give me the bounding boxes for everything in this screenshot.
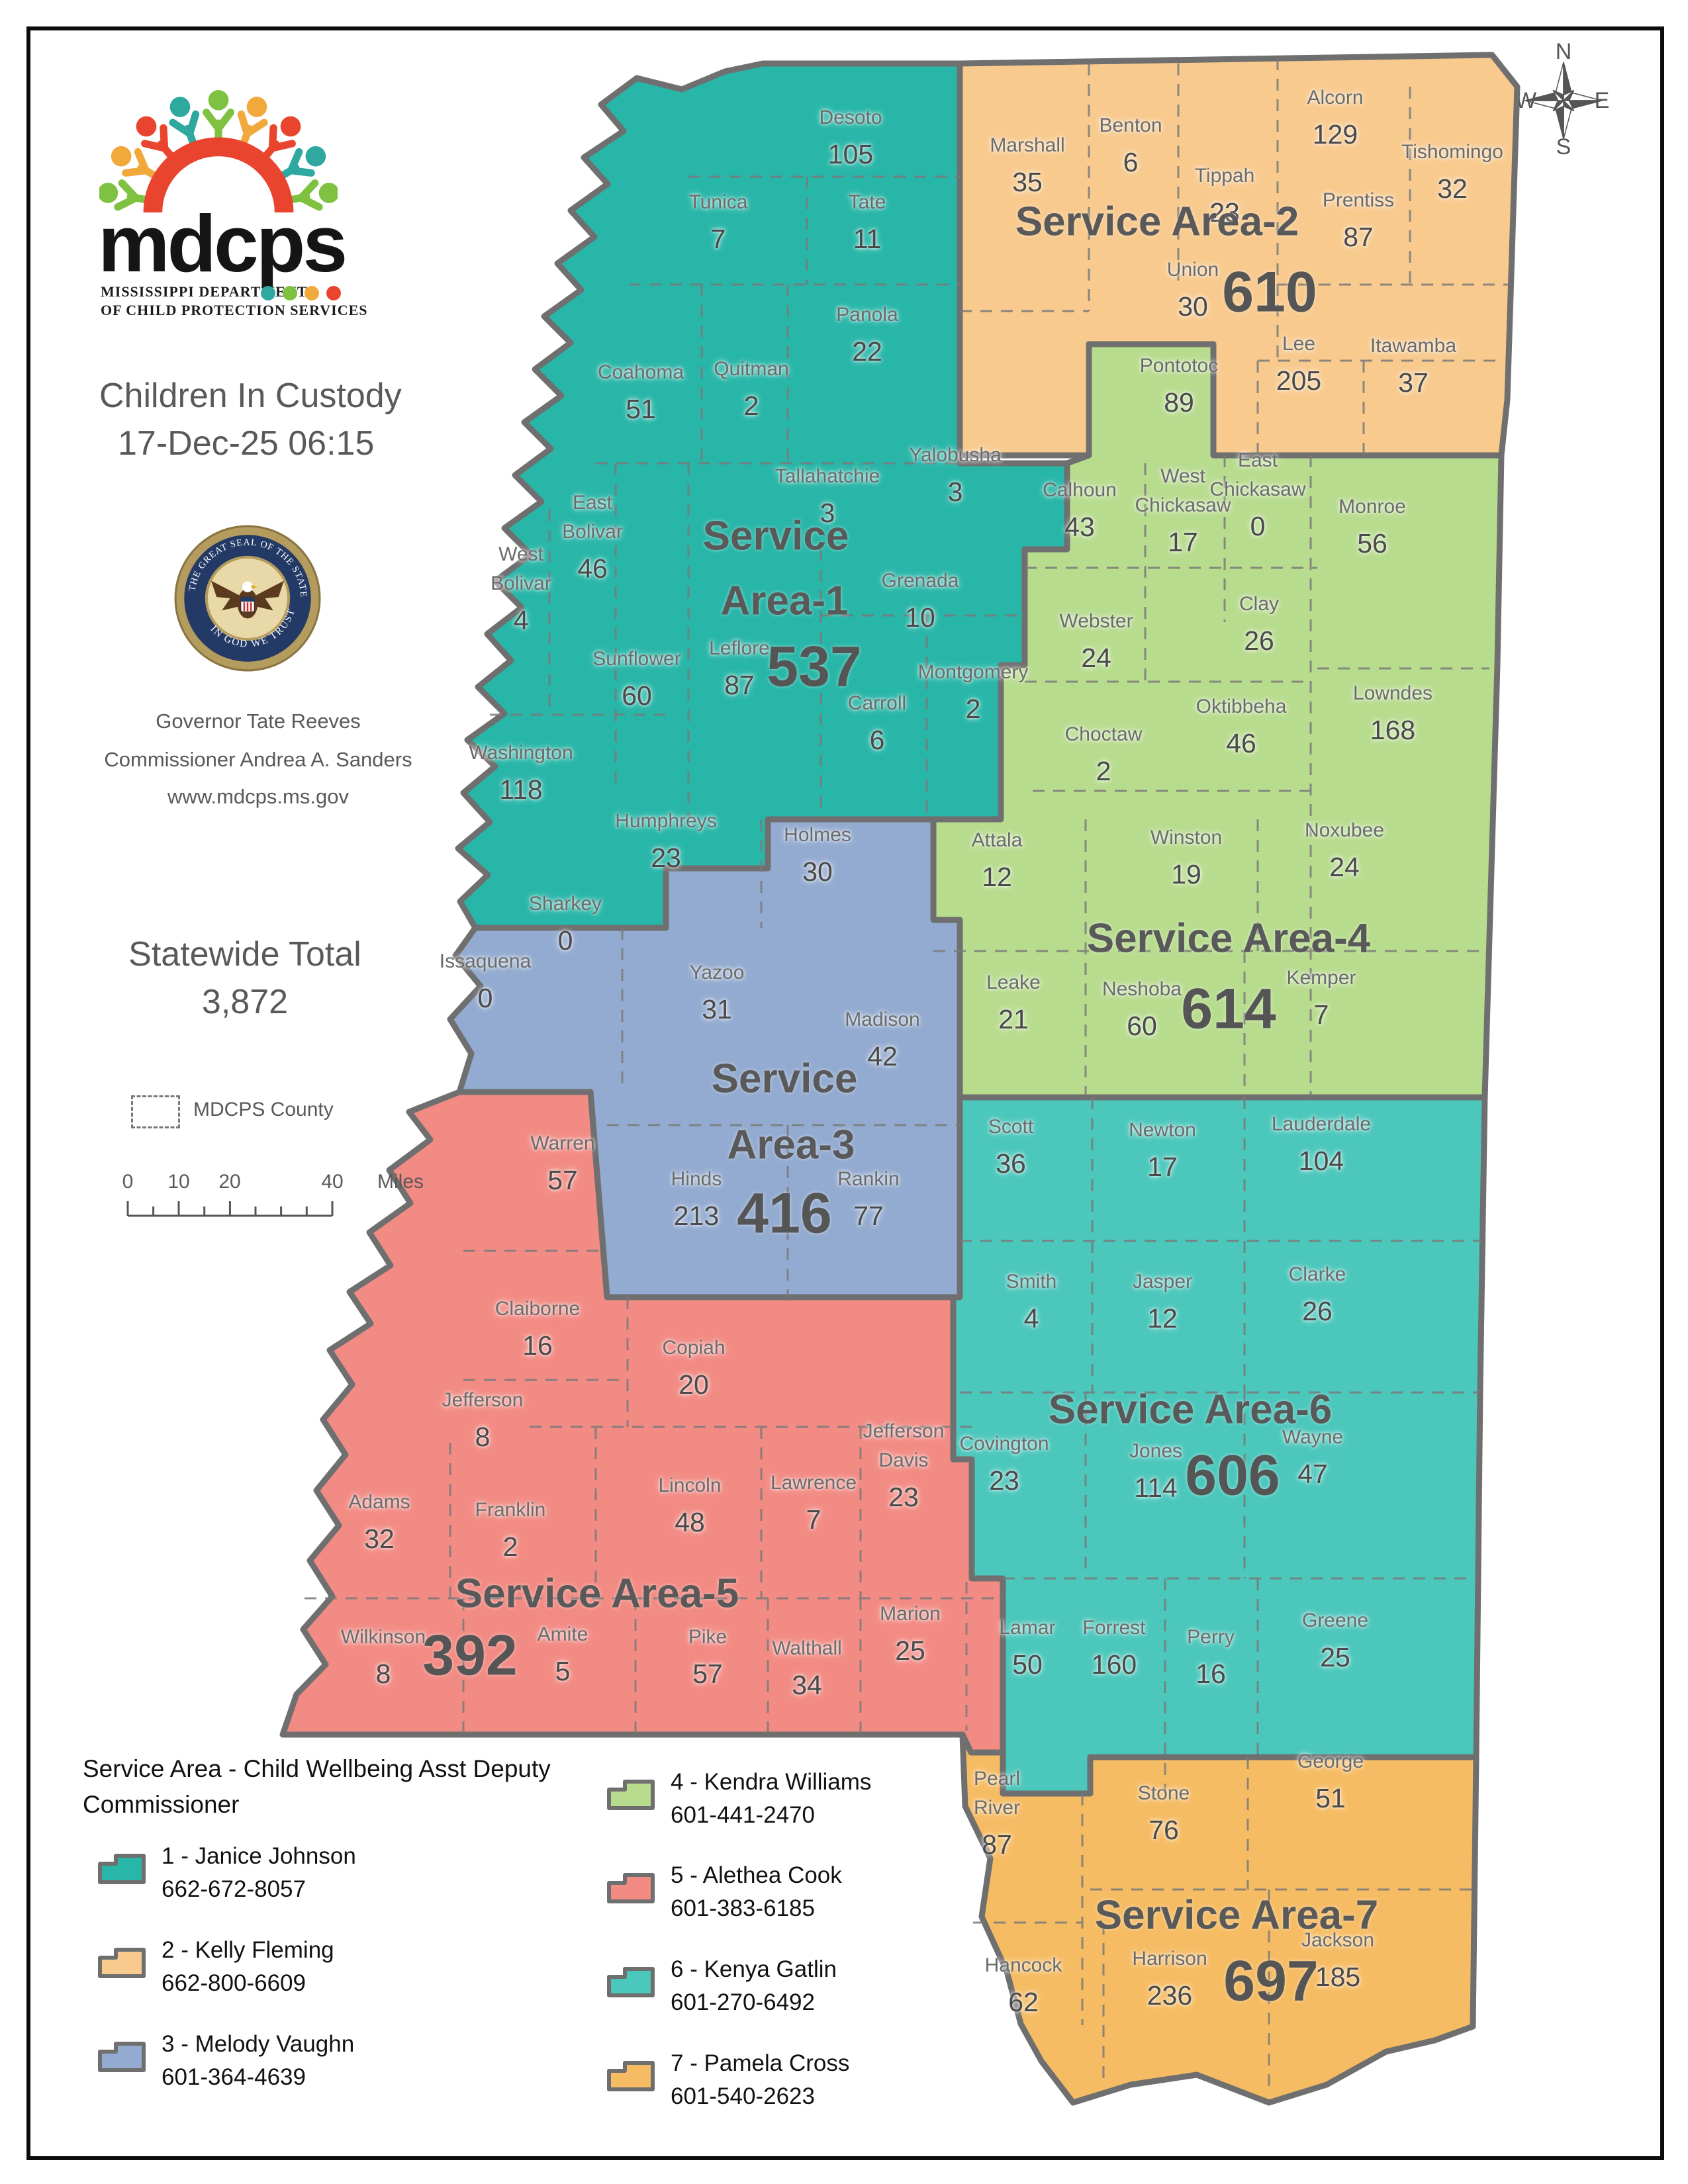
county-value: 46 (1196, 727, 1287, 760)
county-name: Webster (1059, 607, 1133, 636)
legend-item-4: 4 - Kendra Williams601-441-2470 (606, 1766, 871, 1832)
area-total-4: 614 (1181, 977, 1276, 1042)
county-lincoln: Lincoln48 (658, 1471, 721, 1539)
county-union: Union30 (1167, 255, 1219, 323)
county-value: 6 (848, 723, 906, 756)
county-clay: Clay26 (1239, 590, 1279, 657)
county-name: Alcorn (1307, 83, 1363, 113)
legend-swatch (97, 1944, 148, 1981)
county-name: Franklin (475, 1496, 546, 1525)
county-newton: Newton17 (1129, 1116, 1196, 1183)
county-name: Issaquena (440, 947, 531, 976)
area-title-2: Service Area-2 (1015, 199, 1299, 246)
legend-item-5: 5 - Alethea Cook601-383-6185 (606, 1859, 842, 1925)
county-value: 46 (562, 552, 623, 585)
county-lamar: Lamar50 (999, 1614, 1055, 1681)
county-name: Lamar (999, 1614, 1055, 1643)
area-total-1: 537 (767, 635, 862, 700)
scale-bar: 0 10 20 40 Miles (119, 1168, 450, 1234)
county-name: Hancock (985, 1951, 1062, 1980)
county-calhoun: Calhoun43 (1043, 476, 1117, 543)
county-name: Stone (1138, 1779, 1190, 1808)
county-value: 77 (837, 1199, 899, 1232)
legend-item-phone: 601-364-4639 (162, 2061, 354, 2094)
county-name: Holmes (784, 821, 851, 850)
county-value: 48 (658, 1506, 721, 1539)
county-name: Calhoun (1043, 476, 1117, 505)
legend-item-2: 2 - Kelly Fleming662-800-6609 (97, 1934, 334, 2000)
county-neshoba: Neshoba60 (1102, 975, 1182, 1042)
county-name: Wilkinson (341, 1623, 426, 1652)
area-title-7: Service Area-7 (1095, 1892, 1379, 1939)
county-name: Clarke (1289, 1260, 1346, 1289)
county-value: 7 (771, 1503, 857, 1536)
county-grenada: Grenada10 (882, 567, 959, 634)
county-lowndes: Lowndes168 (1353, 679, 1432, 747)
county-montgomery: Montgomery2 (918, 658, 1029, 725)
county-value: 76 (1138, 1813, 1190, 1846)
county-amite: Amite5 (538, 1620, 588, 1688)
county-east-chickasaw: EastChickasaw0 (1209, 446, 1305, 543)
county-name: Walthall (772, 1634, 842, 1663)
county-name: Perry (1187, 1623, 1235, 1652)
county-value: 8 (442, 1420, 524, 1453)
compass-rose: N S W E (1519, 43, 1609, 159)
county-name: Prentiss (1323, 186, 1394, 215)
county-value: 89 (1140, 386, 1218, 419)
legend-item-name: 7 - Pamela Cross (671, 2047, 849, 2080)
compass-north: N (1556, 43, 1572, 64)
county-scott: Scott36 (988, 1113, 1033, 1180)
county-name: Sharkey (529, 889, 602, 919)
county-value: 32 (348, 1522, 410, 1555)
county-name: Pontotoc (1140, 351, 1218, 381)
legend-item-3: 3 - Melody Vaughn601-364-4639 (97, 2028, 354, 2094)
legend-title-line1: Service Area - Child Wellbeing Asst Depu… (83, 1755, 551, 1783)
county-value: 62 (985, 1985, 1062, 2019)
county-hinds: Hinds213 (671, 1165, 722, 1232)
county-smith: Smith4 (1006, 1267, 1057, 1335)
area-total-6: 606 (1185, 1443, 1280, 1509)
county-name: Adams (348, 1488, 410, 1517)
county-lee: Lee205 (1276, 330, 1321, 397)
legend-swatch (606, 1870, 657, 1907)
county-yazoo: Yazoo31 (690, 958, 745, 1026)
scale-tick-0: 0 (122, 1171, 134, 1193)
county-value: 43 (1043, 510, 1117, 543)
scale-tick-20: 20 (218, 1171, 240, 1193)
county-name: Union (1167, 255, 1219, 285)
county-value: 37 (1370, 366, 1456, 399)
area-title-3: Service (712, 1056, 858, 1103)
county-name: Yalobusha (909, 441, 1002, 470)
county-value: 168 (1353, 713, 1432, 747)
county-winston: Winston19 (1150, 823, 1222, 891)
county-name: Copiah (662, 1334, 725, 1363)
county-name: Montgomery (918, 658, 1029, 687)
county-value: 2 (475, 1530, 546, 1563)
county-adams: Adams32 (348, 1488, 410, 1555)
county-perry: Perry16 (1187, 1623, 1235, 1690)
area-total-3: 416 (737, 1181, 832, 1247)
legend-item-phone: 601-270-6492 (671, 1986, 837, 2019)
county-value: 23 (615, 841, 716, 874)
county-value: 56 (1338, 527, 1406, 560)
county-coahoma: Coahoma51 (598, 358, 684, 426)
county-walthall: Walthall34 (772, 1634, 842, 1702)
county-issaquena: Issaquena0 (440, 947, 531, 1015)
county-name: Itawamba (1370, 332, 1456, 361)
legend-item-name: 3 - Melody Vaughn (162, 2028, 354, 2061)
website-line: www.mdcps.ms.gov (60, 785, 457, 809)
county-name: Covington (959, 1430, 1049, 1459)
county-name: Humphreys (615, 807, 716, 836)
county-covington: Covington23 (959, 1430, 1049, 1497)
statewide-total-value: 3,872 (46, 982, 444, 1022)
mdcps-wordmark: mdcps (98, 210, 345, 277)
legend-item-name: 1 - Janice Johnson (162, 1840, 356, 1873)
county-itawamba: Itawamba37 (1370, 332, 1456, 399)
county-value: 25 (1302, 1641, 1368, 1674)
county-value: 51 (598, 392, 684, 426)
county-webster: Webster24 (1059, 607, 1133, 674)
legend-swatch (606, 2058, 657, 2095)
commissioner-line: Commissioner Andrea A. Sanders (60, 748, 457, 772)
county-name: East (1209, 446, 1305, 475)
county-value: 36 (988, 1147, 1033, 1180)
county-name: Lincoln (658, 1471, 721, 1500)
county-value: 26 (1289, 1295, 1346, 1328)
county-value: 0 (1209, 510, 1305, 543)
county-tishomingo: Tishomingo32 (1401, 138, 1503, 205)
county-value: 12 (972, 860, 1023, 893)
governor-line: Governor Tate Reeves (60, 709, 457, 733)
county-value: 22 (836, 335, 898, 368)
county-value: 87 (1323, 220, 1394, 253)
county-pike: Pike57 (688, 1623, 727, 1690)
county-leflore: Leflore87 (709, 634, 770, 702)
county-name: Oktibbeha (1196, 692, 1287, 721)
legend-item-name: 5 - Alethea Cook (671, 1859, 842, 1892)
county-value: 205 (1276, 364, 1321, 397)
scale-tick-40: 40 (321, 1171, 343, 1193)
county-value: 114 (1129, 1471, 1182, 1504)
county-value: 17 (1129, 1150, 1196, 1183)
county-leake: Leake21 (986, 968, 1041, 1036)
area-title-3: Area-3 (727, 1122, 855, 1169)
county-name: Smith (1006, 1267, 1057, 1297)
county-lawrence: Lawrence7 (771, 1469, 857, 1536)
county-choctaw: Choctaw2 (1065, 720, 1143, 788)
county-value: 31 (690, 993, 745, 1026)
county-name: Quitman (714, 355, 788, 384)
county-value: 118 (469, 773, 573, 806)
area-title-6: Service Area-6 (1049, 1387, 1333, 1433)
county-value: 25 (880, 1634, 941, 1667)
area-title-1: Area-1 (721, 578, 849, 625)
legend-item-phone: 662-672-8057 (162, 1873, 356, 1906)
county-stone: Stone76 (1138, 1779, 1190, 1846)
county-name: Pearl (974, 1764, 1020, 1794)
legend-swatch (606, 1964, 657, 2001)
county-name: Winston (1150, 823, 1222, 852)
county-desoto: Desoto105 (819, 103, 882, 171)
county-name: Tippah (1195, 161, 1255, 191)
county-name: Warren (530, 1129, 594, 1158)
county-name: Grenada (882, 567, 959, 596)
county-name: Benton (1099, 111, 1162, 140)
county-name: Pike (688, 1623, 727, 1652)
county-name: Tishomingo (1401, 138, 1503, 167)
compass-west: W (1519, 88, 1536, 113)
scale-unit: Miles (377, 1171, 424, 1193)
county-value: 2 (918, 692, 1029, 725)
county-value: 8 (341, 1657, 426, 1690)
county-value: 57 (530, 1163, 594, 1197)
county-name: Kemper (1286, 964, 1356, 993)
compass-east: E (1595, 88, 1609, 113)
statewide-total-label: Statewide Total (46, 934, 444, 974)
county-name: Forrest (1082, 1614, 1145, 1643)
logo-dots (259, 285, 346, 302)
county-quitman: Quitman2 (714, 355, 788, 422)
county-name: Jefferson (863, 1417, 945, 1446)
county-kemper: Kemper7 (1286, 964, 1356, 1031)
county-name: Tallahatchie (775, 462, 880, 491)
area-total-5: 392 (422, 1623, 518, 1689)
county-value: 213 (671, 1199, 722, 1232)
county-value: 30 (1167, 290, 1219, 323)
area-total-7: 697 (1223, 1949, 1319, 2015)
county-value: 16 (1187, 1657, 1235, 1690)
county-hancock: Hancock62 (985, 1951, 1062, 2019)
county-value: 105 (819, 138, 882, 171)
county-value: 51 (1297, 1782, 1364, 1815)
county-name: Monroe (1338, 492, 1406, 522)
county-name: Chickasaw (1209, 475, 1305, 504)
county-noxubee: Noxubee24 (1305, 816, 1384, 884)
county-yalobusha: Yalobusha3 (909, 441, 1002, 508)
county-value: 0 (529, 924, 602, 957)
county-value: 87 (709, 668, 770, 702)
county-greene: Greene25 (1302, 1606, 1368, 1674)
county-name: Leake (986, 968, 1041, 997)
county-value: 19 (1150, 858, 1222, 891)
county-jones: Jones114 (1129, 1437, 1182, 1504)
county-name: Lauderdale (1272, 1110, 1371, 1139)
mdcps-county-key-label: MDCPS County (193, 1099, 334, 1121)
county-name: Lee (1276, 330, 1321, 359)
county-washington: Washington118 (469, 739, 573, 806)
county-value: 236 (1132, 1979, 1207, 2012)
county-value: 24 (1305, 850, 1384, 884)
county-value: 60 (592, 679, 680, 712)
area-total-2: 610 (1222, 260, 1317, 326)
county-claiborne: Claiborne16 (495, 1295, 580, 1362)
county-pontotoc: Pontotoc89 (1140, 351, 1218, 419)
county-name: River (974, 1794, 1020, 1823)
county-value: 60 (1102, 1009, 1182, 1042)
county-name: Sunflower (592, 645, 680, 674)
county-jasper: Jasper12 (1133, 1267, 1192, 1335)
county-name: Marion (880, 1600, 941, 1629)
compass-south: S (1556, 134, 1571, 159)
county-value: 2 (1065, 754, 1143, 788)
county-name: Jasper (1133, 1267, 1192, 1297)
county-name: Newton (1129, 1116, 1196, 1145)
county-value: 4 (1006, 1302, 1057, 1335)
county-name: Lowndes (1353, 679, 1432, 708)
county-value: 50 (999, 1648, 1055, 1681)
county-value: 57 (688, 1657, 727, 1690)
county-tunica: Tunica7 (689, 188, 748, 255)
county-benton: Benton6 (1099, 111, 1162, 179)
county-prentiss: Prentiss87 (1323, 186, 1394, 253)
county-value: 23 (959, 1464, 1049, 1497)
county-name: East (562, 488, 623, 518)
county-jefferson-davis: JeffersonDavis23 (863, 1417, 945, 1514)
logo-subtitle-2: OF CHILD PROTECTION SERVICES (101, 302, 368, 319)
legend-item-phone: 601-383-6185 (671, 1892, 842, 1925)
county-name: Desoto (819, 103, 882, 132)
county-attala: Attala12 (972, 826, 1023, 893)
county-name: Panola (836, 300, 898, 330)
county-value: 3 (909, 475, 1002, 508)
county-name: Davis (863, 1446, 945, 1475)
county-name: Greene (1302, 1606, 1368, 1635)
county-value: 35 (990, 165, 1064, 199)
county-value: 24 (1059, 641, 1133, 674)
county-value: 21 (986, 1003, 1041, 1036)
county-value: 7 (689, 222, 748, 255)
area-title-4: Service Area-4 (1087, 915, 1371, 962)
county-name: Madison (845, 1005, 919, 1034)
county-jefferson: Jefferson8 (442, 1386, 524, 1453)
legend-item-6: 6 - Kenya Gatlin601-270-6492 (606, 1953, 837, 2019)
mdcps-logo-tree (99, 58, 338, 214)
legend-swatch (97, 1850, 148, 1888)
mdcps-county-key-icon (131, 1095, 180, 1128)
legend-item-7: 7 - Pamela Cross601-540-2623 (606, 2047, 849, 2113)
county-value: 10 (882, 601, 959, 634)
county-name: Coahoma (598, 358, 684, 387)
county-clarke: Clarke26 (1289, 1260, 1346, 1328)
county-marion: Marion25 (880, 1600, 941, 1667)
county-value: 7 (1286, 998, 1356, 1031)
county-monroe: Monroe56 (1338, 492, 1406, 560)
county-value: 26 (1239, 624, 1279, 657)
county-name: Rankin (837, 1165, 899, 1194)
county-name: George (1297, 1747, 1364, 1776)
legend-swatch (606, 1776, 657, 1813)
county-value: 129 (1307, 118, 1363, 151)
county-holmes: Holmes30 (784, 821, 851, 888)
county-value: 104 (1272, 1144, 1371, 1177)
county-name: Lawrence (771, 1469, 857, 1498)
county-name: Bolivar (491, 569, 551, 598)
county-copiah: Copiah20 (662, 1334, 725, 1401)
county-george: George51 (1297, 1747, 1364, 1815)
county-alcorn: Alcorn129 (1307, 83, 1363, 151)
county-value: 34 (772, 1668, 842, 1702)
county-value: 11 (849, 222, 886, 255)
county-value: 20 (662, 1368, 725, 1401)
county-sharkey: Sharkey0 (529, 889, 602, 957)
report-datetime: 17-Dec-25 06:15 (118, 424, 374, 463)
county-humphreys: Humphreys23 (615, 807, 716, 874)
county-name: Claiborne (495, 1295, 580, 1324)
county-value: 87 (974, 1828, 1020, 1861)
county-value: 160 (1082, 1648, 1145, 1681)
legend-item-phone: 662-800-6609 (162, 1967, 334, 2000)
county-name: Jefferson (442, 1386, 524, 1415)
county-marshall: Marshall35 (990, 131, 1064, 199)
county-value: 4 (491, 604, 551, 637)
county-name: Attala (972, 826, 1023, 855)
scale-tick-10: 10 (167, 1171, 189, 1193)
county-name: Choctaw (1065, 720, 1143, 749)
county-value: 32 (1401, 172, 1503, 205)
county-name: Marshall (990, 131, 1064, 160)
legend-item-1: 1 - Janice Johnson662-672-8057 (97, 1840, 356, 1906)
county-lauderdale: Lauderdale104 (1272, 1110, 1371, 1177)
county-name: West (491, 540, 551, 569)
county-name: Washington (469, 739, 573, 768)
county-warren: Warren57 (530, 1129, 594, 1197)
county-pearl-river: PearlRiver87 (974, 1764, 1020, 1861)
county-name: Bolivar (562, 518, 623, 547)
county-value: 30 (784, 855, 851, 888)
mississippi-state-seal: THE GREAT SEAL OF THE STATE OF MISSISSIP… (173, 524, 322, 672)
county-rankin: Rankin77 (837, 1165, 899, 1232)
county-panola: Panola22 (836, 300, 898, 368)
county-west-bolivar: WestBolivar4 (491, 540, 551, 637)
county-name: Clay (1239, 590, 1279, 619)
county-name: Scott (988, 1113, 1033, 1142)
county-oktibbeha: Oktibbeha46 (1196, 692, 1287, 760)
legend-swatch (97, 2038, 148, 2075)
county-value: 2 (714, 389, 788, 422)
county-franklin: Franklin2 (475, 1496, 546, 1563)
county-east-bolivar: EastBolivar46 (562, 488, 623, 585)
county-name: Yazoo (690, 958, 745, 987)
county-name: Noxubee (1305, 816, 1384, 845)
county-name: Jones (1129, 1437, 1182, 1466)
legend-item-phone: 601-540-2623 (671, 2080, 849, 2113)
county-wilkinson: Wilkinson8 (341, 1623, 426, 1690)
county-value: 0 (440, 981, 531, 1015)
county-name: Amite (538, 1620, 588, 1649)
county-value: 6 (1099, 146, 1162, 179)
report-page: Desoto105Tunica7Tate11Panola22Coahoma51Q… (0, 0, 1688, 2184)
county-value: 47 (1282, 1457, 1343, 1490)
county-forrest: Forrest160 (1082, 1614, 1145, 1681)
county-name: Harrison (1132, 1944, 1207, 1974)
county-name: Hinds (671, 1165, 722, 1194)
county-name: Tunica (689, 188, 748, 217)
county-value: 12 (1133, 1302, 1192, 1335)
county-sunflower: Sunflower60 (592, 645, 680, 712)
legend-item-phone: 601-441-2470 (671, 1799, 871, 1832)
legend-item-name: 6 - Kenya Gatlin (671, 1953, 837, 1986)
county-name: Neshoba (1102, 975, 1182, 1004)
county-harrison: Harrison236 (1132, 1944, 1207, 2012)
county-value: 23 (863, 1480, 945, 1514)
legend-item-name: 2 - Kelly Fleming (162, 1934, 334, 1967)
legend-item-name: 4 - Kendra Williams (671, 1766, 871, 1799)
area-title-1: Service (703, 513, 849, 560)
county-value: 5 (538, 1655, 588, 1688)
